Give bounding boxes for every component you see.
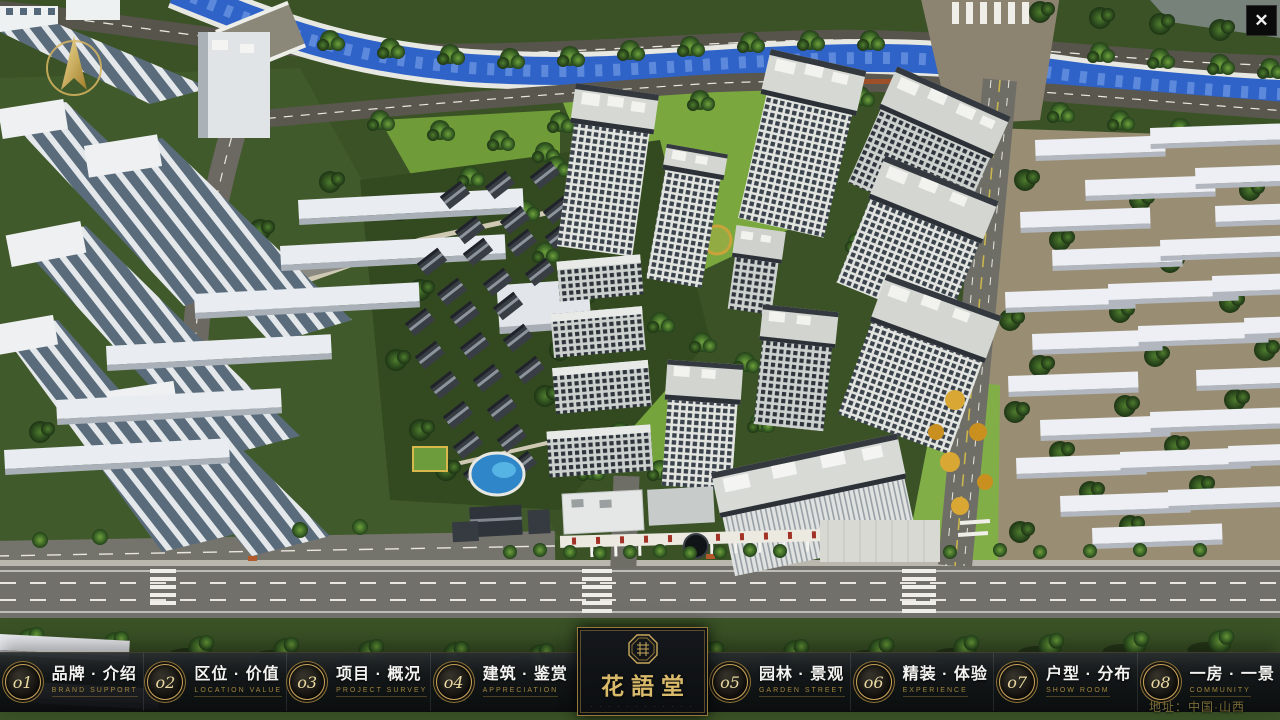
nav-number: o1 (13, 673, 33, 692)
nav-label-zh: 精装 · 体验 (903, 667, 988, 683)
nav-label-zh: 建筑 · 鉴赏 (483, 667, 568, 683)
nav-item-brand[interactable]: o1 品牌 · 介绍BRAND SUPPORT (0, 653, 143, 711)
project-logo-subtitle: · · · · · · · · · · · · (590, 704, 694, 710)
nav-item-units[interactable]: o7 户型 · 分布SHOW ROOM (993, 653, 1137, 711)
nav-item-architecture[interactable]: o4 建筑 · 鉴赏APPRECIATION (430, 653, 574, 711)
nav-label-en: APPRECIATION (483, 687, 559, 697)
address-label: 地址：中国·山西 (1149, 698, 1245, 715)
site-aerial-view[interactable] (0, 0, 1280, 720)
nav-label-en: GARDEN STREET (759, 687, 845, 697)
nav-label-zh: 区位 · 价值 (194, 667, 279, 683)
nav-label-en: COMMUNITY (1190, 687, 1251, 697)
nav-number-badge: o7 (999, 664, 1035, 700)
nav-item-location[interactable]: o2 区位 · 价值LOCATION VALUE (143, 653, 287, 711)
nav-label-en: BRAND SUPPORT (52, 687, 138, 697)
nav-label-en: LOCATION VALUE (194, 687, 282, 697)
nav-label-en: PROJECT SURVEY (336, 687, 427, 697)
nav-number: o5 (720, 673, 740, 692)
nav-number-badge: o4 (436, 664, 472, 700)
nav-number-badge: o3 (289, 664, 325, 700)
close-button[interactable]: ✕ (1246, 5, 1277, 36)
project-logo-panel[interactable]: 花語堂 · · · · · · · · · · · · (577, 627, 708, 716)
nav-label-en: SHOW ROOM (1046, 687, 1110, 697)
nav-number: o7 (1007, 673, 1027, 692)
nav-number-badge: o2 (147, 664, 183, 700)
nav-item-project[interactable]: o3 项目 · 概况PROJECT SURVEY (286, 653, 430, 711)
nav-item-interior[interactable]: o6 精装 · 体验EXPERIENCE (850, 653, 994, 711)
nav-number: o6 (864, 673, 884, 692)
nav-number-badge: o5 (712, 664, 748, 700)
nav-label-zh: 一房 · 一景 (1190, 667, 1275, 683)
nav-number-badge: o1 (5, 664, 41, 700)
nav-label-zh: 园林 · 景观 (759, 667, 844, 683)
nav-number-badge: o6 (856, 664, 892, 700)
nav-number-badge: o8 (1143, 664, 1179, 700)
nav-number: o4 (444, 673, 464, 692)
nav-group-left: o1 品牌 · 介绍BRAND SUPPORT o2 区位 · 价值LOCATI… (0, 653, 573, 711)
project-logo-title: 花語堂 (594, 667, 691, 701)
sales-presentation-app: ✕ o1 品牌 · 介绍BRAND SUPPORT o2 区位 · 价值LOCA… (0, 0, 1280, 720)
nav-number: o8 (1151, 673, 1171, 692)
nav-label-zh: 项目 · 概况 (336, 667, 421, 683)
nav-label-zh: 品牌 · 介绍 (52, 667, 137, 683)
nav-label-zh: 户型 · 分布 (1046, 667, 1131, 683)
nav-number: o3 (297, 673, 317, 692)
octagon-seal-icon (628, 634, 658, 664)
nav-label-en: EXPERIENCE (903, 687, 968, 697)
nav-item-garden[interactable]: o5 园林 · 景观GARDEN STREET (707, 653, 850, 711)
nav-number: o2 (156, 673, 176, 692)
